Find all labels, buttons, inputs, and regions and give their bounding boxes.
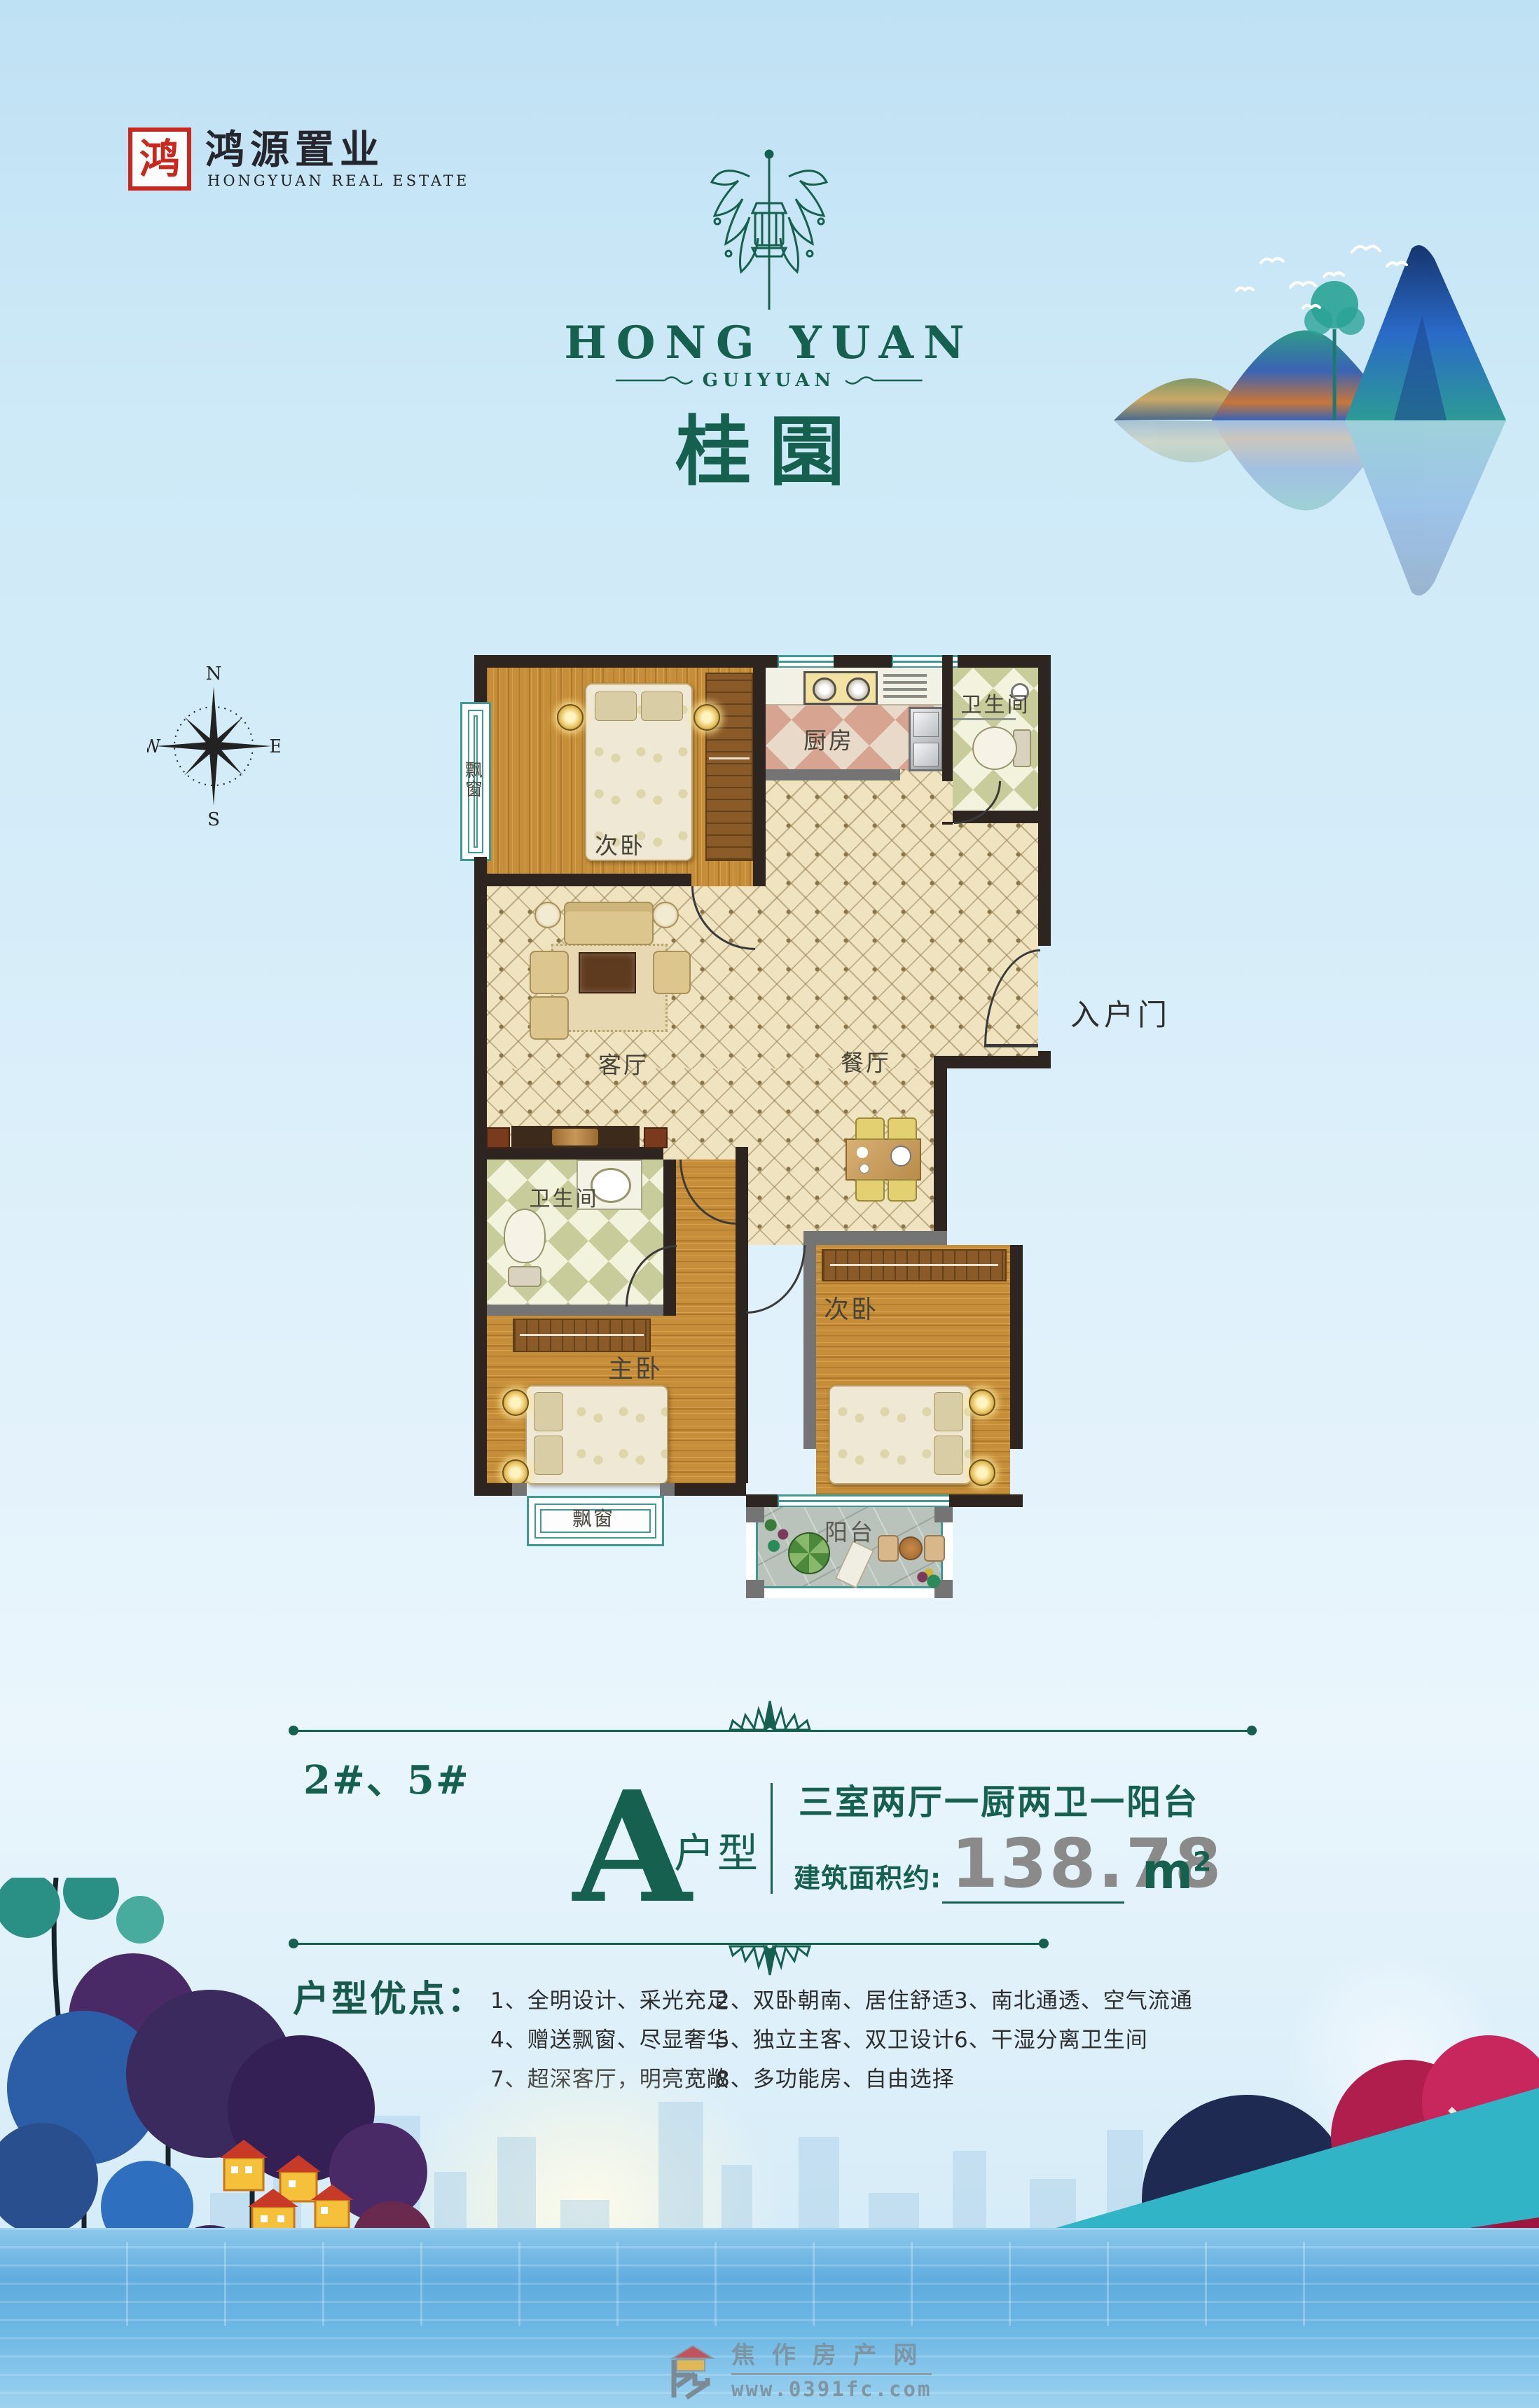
advantage-item: 4、赠送飘窗、尽显奢华 [490,2028,716,2053]
compass-s: S [207,809,220,827]
bay-label-left: 飘窗 [464,761,482,799]
lamp-icon [502,1389,529,1416]
balcony-plant-icon [913,1566,945,1594]
vent-icon [883,674,927,698]
flourish-right-icon [846,376,923,385]
info-vertical-rule [771,1783,773,1894]
watermark-house-icon [667,2343,719,2400]
entry-door-label: 入户门 [1070,1000,1171,1030]
advantage-item: 2、双卧朝南、居住舒适 [716,1988,954,2014]
lamp-icon [969,1459,995,1486]
flourish-left-icon [616,376,693,385]
company-name: 鸿源置业 [205,130,385,170]
compass-w: W [147,736,161,757]
sofa [564,902,654,945]
divider-dot [1247,1726,1257,1735]
crown-ornament-inverted-icon [720,1945,820,1976]
advantage-item: 3、南北通透、空气流通 [954,1988,1233,2014]
area-underline [942,1901,1124,1904]
lamp-icon [557,704,584,731]
tv-bench [511,1126,640,1148]
compass-e: E [270,736,280,757]
mountain-art [1093,210,1539,603]
company-logo: 鸿 [128,128,191,191]
lamp-icon [693,704,720,731]
room-label-kitchen: 厨房 [803,729,854,752]
lamp-icon [969,1389,995,1416]
dining-chair [855,1117,885,1140]
advantage-item: 1、全明设计、采光充足 [490,1988,716,2014]
toilet-top-icon [972,725,1031,769]
room-label-living: 客厅 [598,1054,649,1077]
wardrobe-bedroom-bottom [822,1249,1007,1281]
project-subname-row: GUIYUAN [616,370,923,391]
wardrobe-master [513,1319,651,1352]
company-name-en: HONGYUAN REAL ESTATE [207,174,469,188]
building-number: 2#、5# [303,1749,470,1805]
armchair [530,951,569,994]
dining-chair [888,1179,917,1202]
watermark: 焦 作 房 产 网 www.0391fc.com [667,2343,932,2400]
room-label-bedroom-top: 次卧 [595,834,645,858]
layout-desc: 三室两厅一厨两卫一阳台 [799,1785,1199,1819]
divider [953,718,1016,720]
area-label: 建筑面积约: [794,1865,941,1892]
side-table-icon [652,902,679,928]
floor-plan: 次卧 厨房 卫生间 客厅 [459,655,1051,1608]
divider-dot [289,1726,298,1735]
lamp-icon [502,1459,529,1486]
room-label-bathroom-bottom: 卫生间 [530,1189,599,1210]
watermark-site-name: 焦 作 房 产 网 [731,2343,932,2369]
project-subname: GUIYUAN [703,370,836,391]
bay-label-bottom: 飘窗 [572,1509,614,1529]
room-label-bedroom-bottom: 次卧 [824,1298,878,1323]
dining-chair [855,1179,885,1202]
door-leaf-entry [984,1044,1038,1047]
wardrobe-bedroom-top [705,673,753,861]
toilet-bottom-icon [501,1209,547,1287]
area-unit: m2 [1142,1847,1211,1896]
unit-type: 户型 [674,1833,761,1873]
unit-m: m [1142,1843,1193,1900]
armchair [530,996,569,1040]
room-label-balcony: 阳台 [824,1521,875,1544]
dining-table [846,1138,921,1181]
stove-icon [803,671,878,705]
side-table-icon [534,902,561,928]
coffee-table [579,952,636,993]
lantern-ornament-icon [701,149,838,317]
unit-sup: 2 [1193,1847,1211,1878]
divider-dot [1039,1939,1049,1948]
logo-seal-icon: 鸿 [139,139,180,179]
umbrella-icon [788,1532,830,1574]
door-arc-bedroom-bottom [746,1245,806,1314]
balcony-table-icon [899,1536,923,1560]
dining-chair [888,1117,917,1140]
balcony-chair [924,1535,945,1562]
compass-icon: N S W E [147,666,280,827]
poster: 鸿 鸿源置业 HONGYUAN REAL ESTATE HONG YUAN GU… [0,0,1539,2408]
watermark-site-url: www.0391fc.com [731,2373,932,2400]
project-name-cn: 桂園 [675,391,863,500]
water-sparkle [126,2242,1387,2326]
kitchen-sink-icon [909,707,944,771]
balcony-chair [878,1535,899,1562]
bed-bedroom-bottom [829,1385,972,1485]
bed-master [525,1385,668,1485]
compass-n: N [206,666,222,684]
room-label-master: 主卧 [608,1357,663,1382]
crown-ornament-icon [720,1700,820,1731]
advantage-item: 5、独立主客、双卫设计 [716,2028,954,2053]
room-label-dining: 餐厅 [841,1052,891,1075]
armchair [653,951,691,994]
room-label-bathroom-top: 卫生间 [961,695,1030,716]
project-name-en: HONG YUAN [564,317,974,369]
